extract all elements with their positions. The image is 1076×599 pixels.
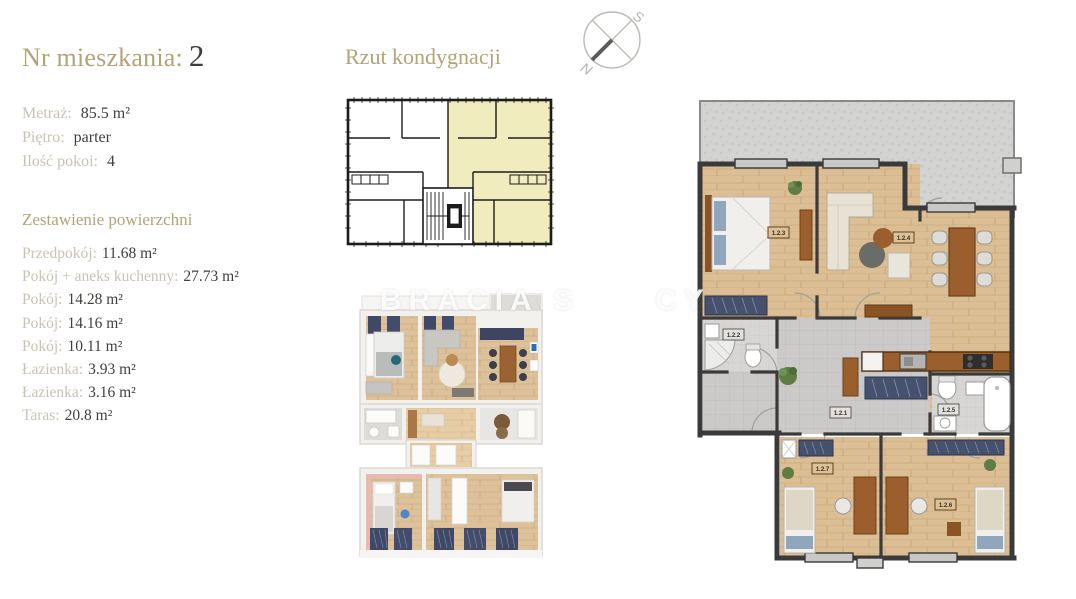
detail-pietro: Piętro: parter [22, 126, 332, 150]
page-title: Nr mieszkania:2 [22, 38, 332, 74]
svg-text:1.2.3: 1.2.3 [772, 231, 786, 237]
render-living-room [422, 316, 476, 400]
room-area-row: Pokój:14.28 m² [22, 288, 332, 311]
room-label-123: 1.2.3 [768, 227, 789, 238]
render-lower-hall [406, 440, 476, 470]
room-label-124: 1.2.4 [893, 232, 914, 243]
detail-ilosc-pokoi: Ilość pokoi: 4 [22, 150, 332, 174]
svg-text:1.2.1: 1.2.1 [834, 411, 848, 417]
room-area: 3.93 m² [88, 361, 136, 378]
room-label: Łazienka: [22, 384, 83, 401]
compass-north-label: N [578, 59, 596, 78]
compass-south-label: S [630, 7, 647, 26]
room-label: Pokój: [22, 315, 62, 332]
room-label-121: 1.2.1 [830, 407, 851, 418]
render-hallway [406, 408, 476, 440]
room-area: 20.8 m² [65, 407, 113, 424]
floor-plan-3d-render [352, 282, 548, 564]
room-area-row: Łazienka:3.93 m² [22, 358, 332, 381]
detail-label: Piętro: [22, 129, 65, 146]
room-area-row: Przedpokój:11.68 m² [22, 242, 332, 265]
apartment-number-label: Nr mieszkania: [22, 43, 183, 72]
room-area: 11.68 m² [102, 245, 157, 262]
room-area: 3.16 m² [88, 384, 136, 401]
svg-text:1.2.4: 1.2.4 [897, 236, 911, 242]
areas-heading: Zestawienie powierzchni [22, 210, 332, 230]
detail-label: Metraż: [22, 105, 72, 122]
render-bathroom-1 [364, 408, 402, 440]
svg-text:1.2.7: 1.2.7 [816, 467, 830, 473]
room-label: Taras: [22, 407, 60, 424]
detail-label: Ilość pokoi: [22, 153, 98, 170]
room-area-row: Łazienka:3.16 m² [22, 381, 332, 404]
render-dining-room [478, 328, 538, 400]
room-label: Łazienka: [22, 361, 83, 378]
stairwell [423, 188, 473, 244]
room-label-127: 1.2.7 [812, 463, 833, 474]
room-label: Przedpokój: [22, 245, 97, 262]
room-area: 14.16 m² [67, 315, 122, 332]
svg-text:1.2.6: 1.2.6 [939, 503, 953, 509]
room-area-row: Pokój:10.11 m² [22, 335, 332, 358]
detail-metraz: Metraż: 85.5 m² [22, 102, 332, 126]
dining-furniture [932, 228, 992, 296]
room-label: Pokój: [22, 338, 62, 355]
svg-text:1.2.2: 1.2.2 [727, 333, 741, 339]
room-area-row: Pokój + aneks kuchenny:27.73 m² [22, 265, 332, 288]
kitchen-counter [862, 352, 1010, 371]
room-label: Pokój: [22, 291, 62, 308]
room-area: 14.28 m² [67, 291, 122, 308]
compass-icon: S N [577, 3, 647, 79]
render-bedroom-3 [426, 474, 538, 552]
svg-text:1.2.5: 1.2.5 [942, 408, 956, 414]
room-label: Pokój + aneks kuchenny: [22, 268, 178, 285]
room-label-126: 1.2.6 [935, 499, 956, 510]
room-area-row: Taras:20.8 m² [22, 404, 332, 427]
compass-needle [592, 40, 612, 60]
apartment-info-panel: Nr mieszkania:2 Metraż: 85.5 m² Piętro: … [22, 38, 332, 428]
room-label-122: 1.2.2 [723, 329, 744, 340]
room-area-row: Pokój:14.16 m² [22, 312, 332, 335]
room-label-125: 1.2.5 [938, 404, 959, 415]
detail-value: 85.5 m² [81, 105, 130, 122]
floor-plan-heading: Rzut kondygnacji [345, 44, 501, 70]
apartment-number-value: 2 [189, 38, 205, 73]
room-areas-list: Przedpokój:11.68 m² Pokój + aneks kuchen… [22, 242, 332, 428]
room-area: 10.11 m² [67, 338, 122, 355]
detail-value: parter [74, 129, 111, 146]
render-bathroom-2 [480, 408, 538, 440]
building-outline-plan [344, 96, 556, 254]
detail-value: 4 [107, 153, 115, 170]
room-area: 27.73 m² [183, 268, 238, 285]
floor-plan-2d-detailed: 1.2.3 1.2.4 1.2.2 1.2.1 1.2.5 1.2.7 1.2.… [687, 92, 1027, 572]
render-bedroom-2 [366, 474, 422, 552]
render-bedroom-1 [366, 316, 418, 400]
apartment-details: Metraż: 85.5 m² Piętro: parter Ilość pok… [22, 102, 332, 174]
floor-entry [703, 372, 777, 433]
